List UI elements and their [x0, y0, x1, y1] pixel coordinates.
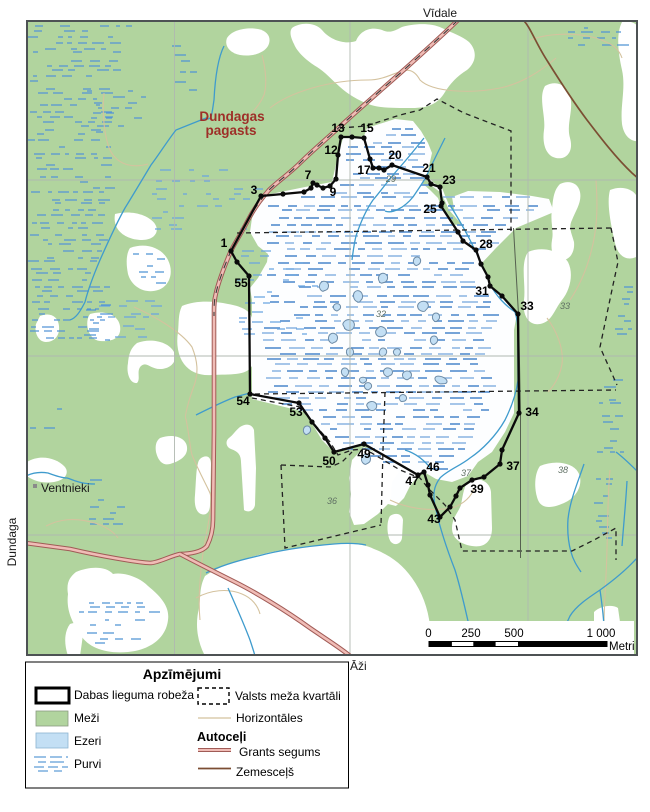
svg-text:47: 47: [405, 474, 419, 488]
svg-text:39: 39: [470, 482, 484, 496]
svg-text:Ventnieki: Ventnieki: [41, 481, 90, 495]
svg-text:Ezeri: Ezeri: [74, 734, 101, 748]
svg-text:Metri: Metri: [609, 641, 635, 653]
svg-text:20: 20: [388, 148, 402, 162]
svg-text:29: 29: [385, 174, 396, 184]
svg-text:36: 36: [327, 496, 337, 506]
svg-text:Purvi: Purvi: [74, 757, 101, 771]
svg-text:12: 12: [324, 143, 338, 157]
svg-text:53: 53: [289, 405, 303, 419]
svg-text:33: 33: [520, 299, 534, 313]
svg-text:21: 21: [422, 161, 436, 175]
svg-text:Āži: Āži: [350, 659, 367, 673]
svg-text:Vīdale: Vīdale: [423, 6, 457, 20]
svg-text:Horizontāles: Horizontāles: [236, 711, 303, 725]
svg-text:9: 9: [330, 185, 337, 199]
svg-text:500: 500: [504, 628, 523, 640]
svg-text:250: 250: [461, 628, 480, 640]
svg-text:13: 13: [331, 121, 345, 135]
svg-text:55: 55: [234, 276, 248, 290]
svg-text:Dundagas: Dundagas: [199, 109, 264, 124]
svg-text:54: 54: [236, 394, 250, 408]
svg-text:Meži: Meži: [74, 711, 99, 725]
svg-text:34: 34: [525, 405, 539, 419]
svg-text:Autoceļi: Autoceļi: [197, 730, 246, 744]
svg-text:17: 17: [357, 163, 371, 177]
svg-text:38: 38: [558, 465, 568, 475]
svg-text:43: 43: [427, 512, 441, 526]
svg-text:33: 33: [560, 301, 570, 311]
svg-text:3: 3: [251, 183, 258, 197]
svg-text:31: 31: [475, 284, 489, 298]
svg-text:7: 7: [305, 168, 312, 182]
svg-text:28: 28: [479, 237, 493, 251]
svg-text:Grants segums: Grants segums: [239, 745, 320, 759]
svg-text:23: 23: [442, 173, 456, 187]
svg-text:37: 37: [506, 459, 520, 473]
svg-text:pagasts: pagasts: [205, 123, 256, 138]
svg-text:1 000: 1 000: [587, 628, 616, 640]
svg-text:0: 0: [425, 628, 431, 640]
svg-text:37: 37: [461, 468, 472, 478]
svg-text:Dundaga: Dundaga: [5, 517, 19, 566]
svg-text:Dabas lieguma robeža: Dabas lieguma robeža: [74, 688, 194, 702]
svg-text:Zemesceļš: Zemesceļš: [236, 765, 294, 779]
svg-text:25: 25: [423, 202, 437, 216]
svg-text:50: 50: [322, 454, 336, 468]
svg-text:32: 32: [376, 309, 386, 319]
svg-text:Valsts meža kvartāli: Valsts meža kvartāli: [235, 689, 341, 703]
svg-text:Apzīmējumi: Apzīmējumi: [143, 666, 222, 682]
svg-text:49: 49: [357, 447, 371, 461]
svg-text:46: 46: [426, 460, 440, 474]
svg-text:1: 1: [221, 236, 228, 250]
svg-text:15: 15: [360, 121, 374, 135]
